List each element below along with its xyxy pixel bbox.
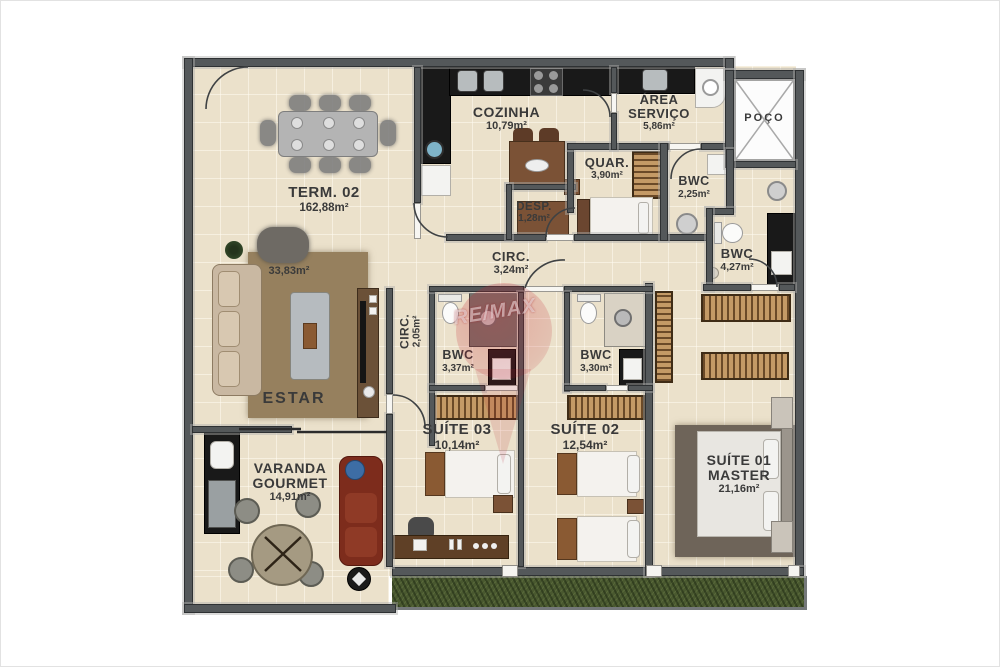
floor-plan: TERM. 02 162,88m² 33,83m² ESTAR COZINHA … xyxy=(0,0,1000,667)
bwc427-toilet xyxy=(722,223,743,243)
stove-burner xyxy=(534,84,543,93)
master-wardrobe xyxy=(701,294,791,322)
door-leaf xyxy=(669,143,701,150)
wall-laundry-left-a xyxy=(611,67,617,93)
stove-burner xyxy=(549,71,558,80)
dining-chair xyxy=(319,157,341,173)
wall-master-left xyxy=(645,283,653,576)
plant xyxy=(225,241,243,259)
plate xyxy=(323,139,335,151)
room-label-suite02: SUÍTE 02 12,54m² xyxy=(533,422,637,452)
room-label-term02: TERM. 02 162,88m² xyxy=(259,185,389,215)
sofa-seat xyxy=(345,527,377,557)
wall-circ-top-b xyxy=(574,234,708,241)
laptop xyxy=(413,539,427,551)
wall-suite-divider xyxy=(518,292,524,567)
wall-kitchen-left xyxy=(414,67,421,203)
desk-item xyxy=(482,543,488,549)
door-leaf xyxy=(546,234,574,241)
wall-bwc330-bottom-a xyxy=(564,385,606,391)
coffee-table-tray xyxy=(303,323,317,349)
dining-chair xyxy=(260,120,276,146)
washer-drum xyxy=(702,79,719,96)
bwc330-toilet xyxy=(580,302,597,324)
wall-poco-bottom xyxy=(734,161,796,168)
laundry-sink xyxy=(642,69,668,91)
bwc330-toilet-tank xyxy=(577,294,601,302)
room-label-circ205: CIRC. 2,05m² xyxy=(399,291,424,371)
room-label-bwc337: BWC 3,37m² xyxy=(427,349,489,374)
wall-bwc330-left xyxy=(564,292,570,392)
desk-item xyxy=(491,543,497,549)
room-label-desp: DESP. 1,28m² xyxy=(501,201,567,225)
dining-chair xyxy=(289,157,311,173)
wall-circ-top-a xyxy=(446,234,546,241)
door-threshold xyxy=(788,565,800,577)
wall-top xyxy=(184,58,733,67)
sofa-cushion xyxy=(218,351,240,387)
suite02-wardrobe xyxy=(567,395,645,420)
wall-master-top-b xyxy=(779,284,795,291)
door-leaf xyxy=(414,203,421,239)
dining-chair xyxy=(380,120,396,146)
plate xyxy=(291,139,303,151)
room-label-varanda: VARANDA GOURMET 14,91m² xyxy=(238,461,342,504)
door-leaf xyxy=(524,286,564,292)
armchair xyxy=(257,227,309,263)
suite02-nightstand xyxy=(627,499,644,514)
blue-pillow xyxy=(345,460,365,480)
door-leaf xyxy=(751,284,779,291)
room-label-bwc225: BWC 2,25m² xyxy=(662,175,726,200)
sofa-cushion xyxy=(218,271,240,307)
bwc225-shower xyxy=(676,213,698,235)
room-label-bwc330: BWC 3,30m² xyxy=(565,349,627,374)
round-table xyxy=(251,524,313,586)
wall-bottom-suites xyxy=(392,567,804,576)
dining-chair xyxy=(349,157,371,173)
wall-right xyxy=(795,70,804,576)
wall-left xyxy=(184,58,193,613)
master-nightstand xyxy=(771,521,793,553)
wall-desp-top xyxy=(506,184,576,190)
desk-item xyxy=(449,539,454,550)
floor-lamp xyxy=(363,386,375,398)
bwc337-toilet xyxy=(442,302,459,324)
wall-bwc330-top xyxy=(564,286,653,292)
table-dish xyxy=(525,159,549,172)
bwc225-sink xyxy=(707,154,727,175)
quar-bed-headboard xyxy=(577,199,590,237)
kitchen-sink xyxy=(457,70,478,92)
door-leaf xyxy=(485,385,518,391)
room-label-bwc427: BWC 4,27m² xyxy=(701,247,773,273)
bwc337-sink xyxy=(492,358,511,380)
room-label-cozinha: COZINHA 10,79m² xyxy=(444,105,569,133)
wall-bottom-varanda xyxy=(184,604,396,613)
kitchen-sink xyxy=(483,70,504,92)
bwc337-shower-head xyxy=(479,309,497,327)
patio-chair xyxy=(228,557,254,583)
bwc427-shower xyxy=(767,181,787,201)
room-label-suite01-master: SUÍTE 01 MASTER 21,16m² xyxy=(695,453,783,496)
speaker xyxy=(369,307,377,315)
bwc330-shower-head xyxy=(614,309,632,327)
desk-item xyxy=(457,539,462,550)
dining-chair xyxy=(289,95,311,111)
bwc427-sink xyxy=(771,251,792,275)
wall-bwc330-bottom-b xyxy=(628,385,653,391)
wall-bwc225-right xyxy=(726,149,734,211)
plate xyxy=(353,117,365,129)
dining-chair xyxy=(319,95,341,111)
door-leaf xyxy=(606,385,628,391)
door-threshold xyxy=(502,565,518,577)
wall-laundry-left-b xyxy=(611,113,617,150)
plate xyxy=(353,139,365,151)
room-label-area-servico: ÁREA SERVIÇO 5,86m² xyxy=(623,93,695,133)
room-label-estar-area: 33,83m² xyxy=(259,265,319,278)
wall-corridor-left-a xyxy=(386,288,393,394)
door-leaf xyxy=(386,394,393,414)
suite03-wardrobe xyxy=(432,395,518,420)
suite03-pillow xyxy=(497,454,511,494)
wall-quar-top xyxy=(567,143,669,150)
wall-estar-varanda xyxy=(192,426,292,433)
suite03-bed-blanket xyxy=(425,452,445,496)
garden-grass-strip xyxy=(392,576,807,610)
door-threshold xyxy=(646,565,662,577)
fridge xyxy=(421,165,451,196)
quar-pillow xyxy=(638,202,649,234)
suite02-pillow xyxy=(627,520,640,558)
kitchen-sink-round xyxy=(425,140,444,159)
plate xyxy=(291,117,303,129)
room-label-quar: QUAR. 3,90m² xyxy=(567,156,647,182)
room-label-estar: ESTAR xyxy=(259,390,329,407)
wall-top-poco xyxy=(725,70,804,79)
master-wardrobe xyxy=(701,352,789,380)
master-wardrobe-tall xyxy=(655,291,673,383)
bwc337-toilet-tank xyxy=(438,294,462,302)
dining-chair xyxy=(349,95,371,111)
sofa-cushion xyxy=(218,311,240,347)
bwc427-toilet-tank xyxy=(714,222,722,244)
wall-bwc337-top xyxy=(429,286,524,292)
door-leaf xyxy=(611,93,617,113)
suite02-bed-blanket xyxy=(557,518,577,560)
tv-icon xyxy=(360,301,366,383)
stove-burner xyxy=(534,71,543,80)
gourmet-sink xyxy=(210,441,234,469)
sofa-seat xyxy=(345,493,377,523)
room-label-poco: POÇO xyxy=(734,113,795,125)
grill xyxy=(208,480,236,528)
wall-bwc337-bottom xyxy=(429,385,485,391)
plate xyxy=(323,117,335,129)
master-nightstand xyxy=(771,397,793,429)
suite02-bed-blanket xyxy=(557,453,577,495)
wall-corridor-left-b xyxy=(386,414,393,567)
stove-burner xyxy=(549,84,558,93)
suite03-nightstand xyxy=(493,495,513,513)
room-label-circ324: CIRC. 3,24m² xyxy=(471,250,551,277)
suite02-pillow xyxy=(627,455,640,493)
desk-item xyxy=(473,543,479,549)
room-label-suite03: SUÍTE 03 10,14m² xyxy=(405,422,509,452)
wall-master-top-a xyxy=(703,284,751,291)
speaker xyxy=(369,295,377,303)
